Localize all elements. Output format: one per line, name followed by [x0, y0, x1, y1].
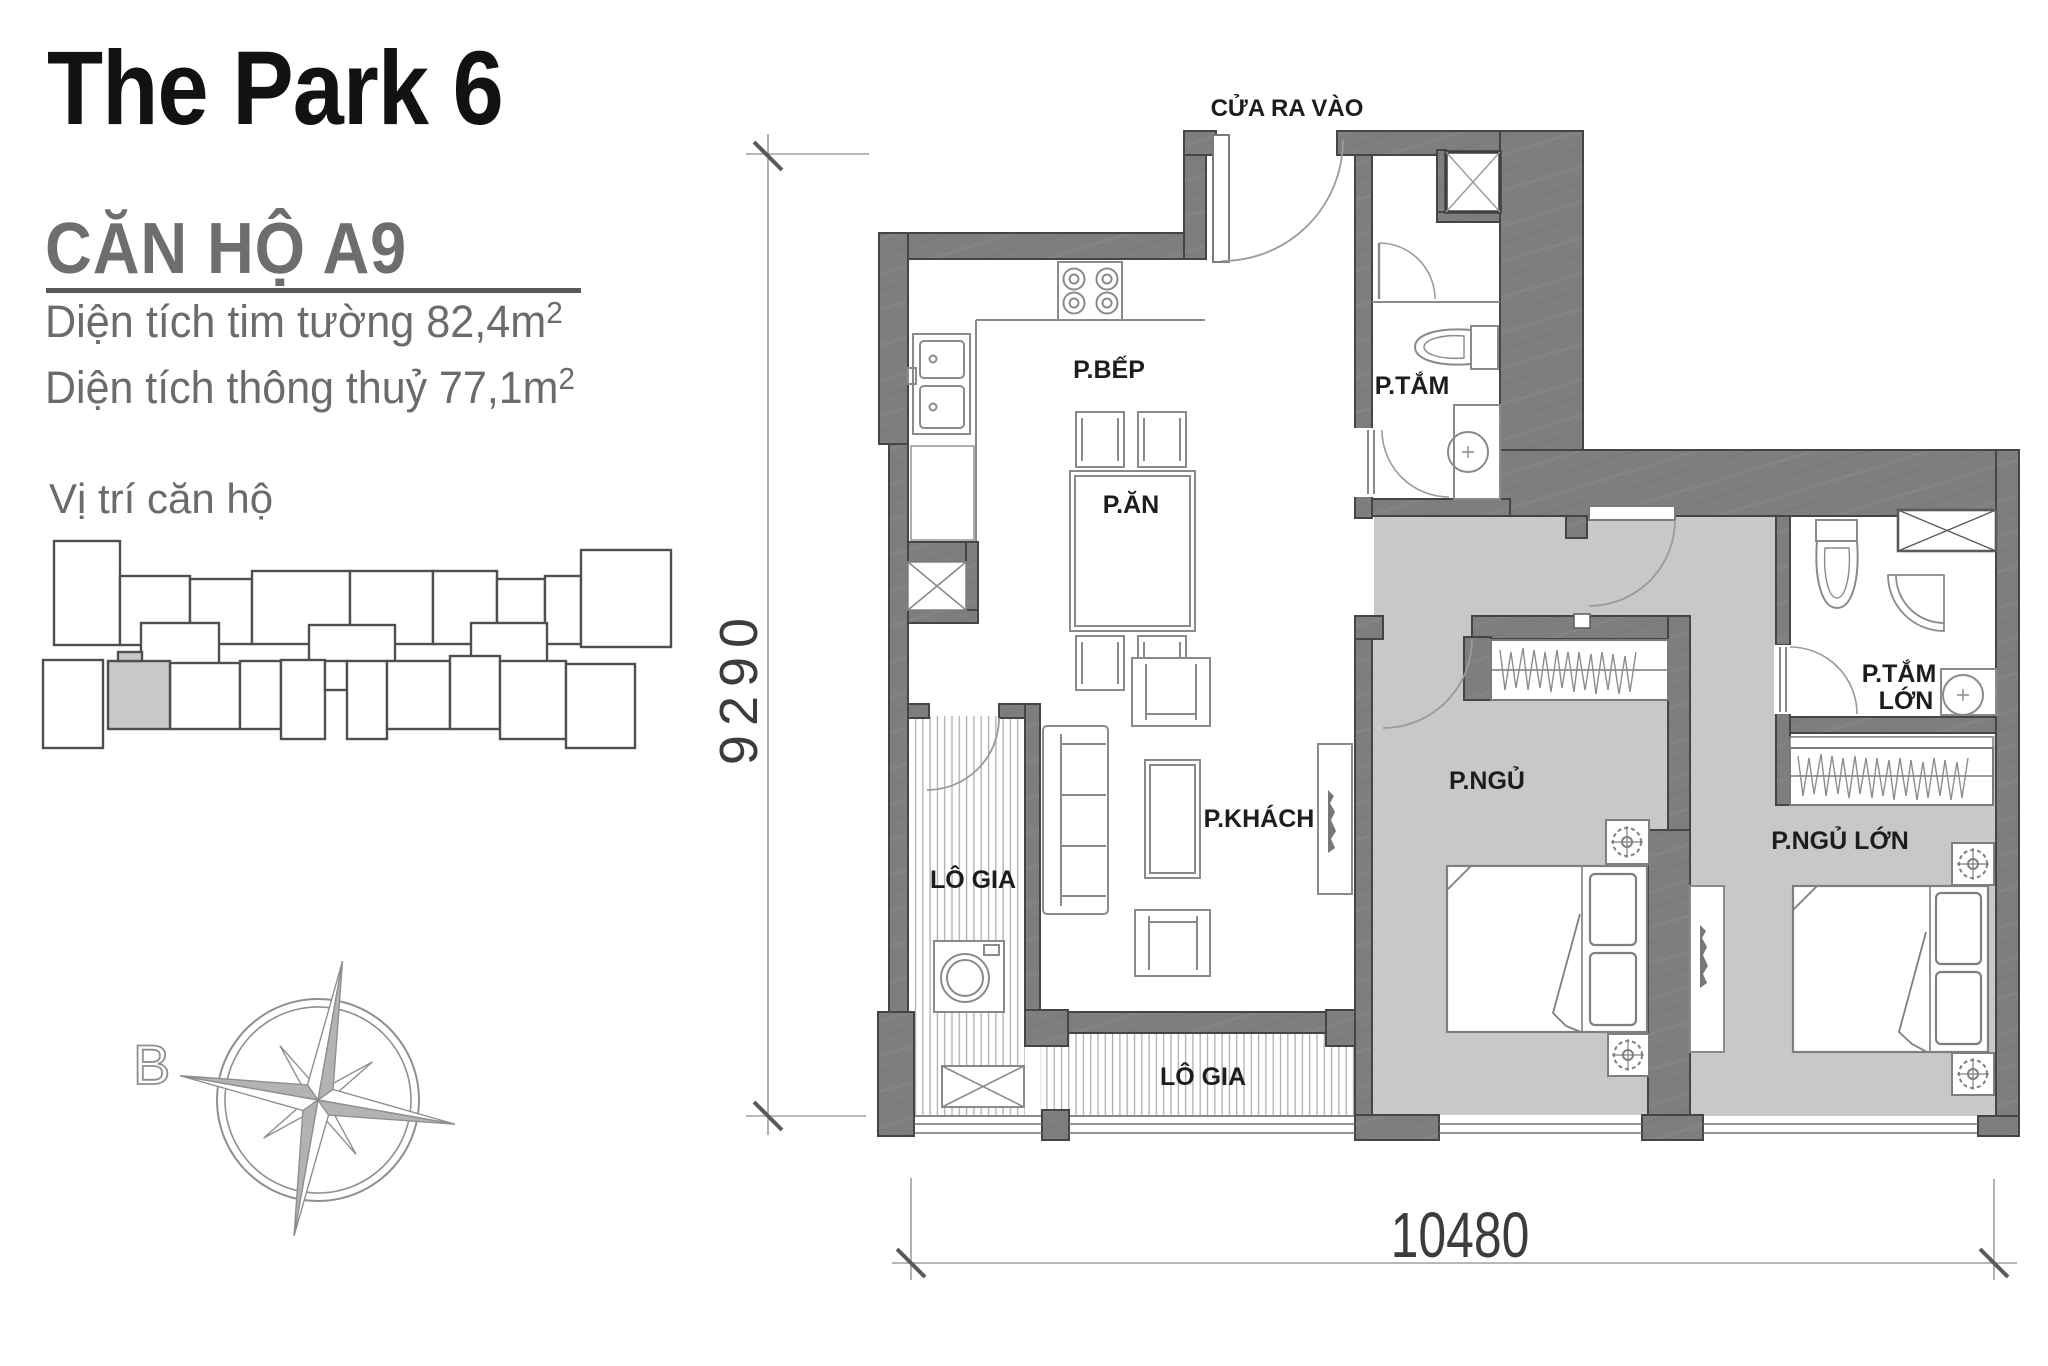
svg-text:The Park 6: The Park 6: [47, 29, 503, 146]
svg-text:LÔ GIA: LÔ GIA: [930, 864, 1016, 894]
svg-text:10480: 10480: [1391, 1200, 1530, 1271]
svg-text:P.NGỦ LỚN: P.NGỦ LỚN: [1771, 825, 1909, 855]
svg-text:Diện tích thông thuỷ 77,1m2: Diện tích thông thuỷ 77,1m2: [45, 362, 575, 413]
svg-text:9290: 9290: [709, 609, 769, 765]
svg-text:P.TẮM: P.TẮM: [1375, 370, 1450, 400]
svg-text:P.NGỦ: P.NGỦ: [1449, 765, 1525, 795]
svg-text:P.BẾP: P.BẾP: [1073, 355, 1145, 384]
svg-text:LÔ GIA: LÔ GIA: [1160, 1061, 1246, 1091]
svg-text:LỚN: LỚN: [1879, 685, 1934, 715]
svg-text:P.TẮM: P.TẮM: [1862, 658, 1937, 688]
svg-text:Diện tích tim tường 82,4m2: Diện tích tim tường 82,4m2: [45, 295, 563, 347]
svg-text:CỬA RA VÀO: CỬA RA VÀO: [1211, 93, 1364, 122]
svg-text:P.KHÁCH: P.KHÁCH: [1204, 804, 1315, 833]
svg-text:B: B: [133, 1033, 170, 1096]
svg-text:Vị trí căn hộ: Vị trí căn hộ: [49, 475, 273, 522]
svg-text:P.ĂN: P.ĂN: [1103, 490, 1160, 519]
svg-text:CĂN HỘ A9: CĂN HỘ A9: [45, 208, 407, 289]
